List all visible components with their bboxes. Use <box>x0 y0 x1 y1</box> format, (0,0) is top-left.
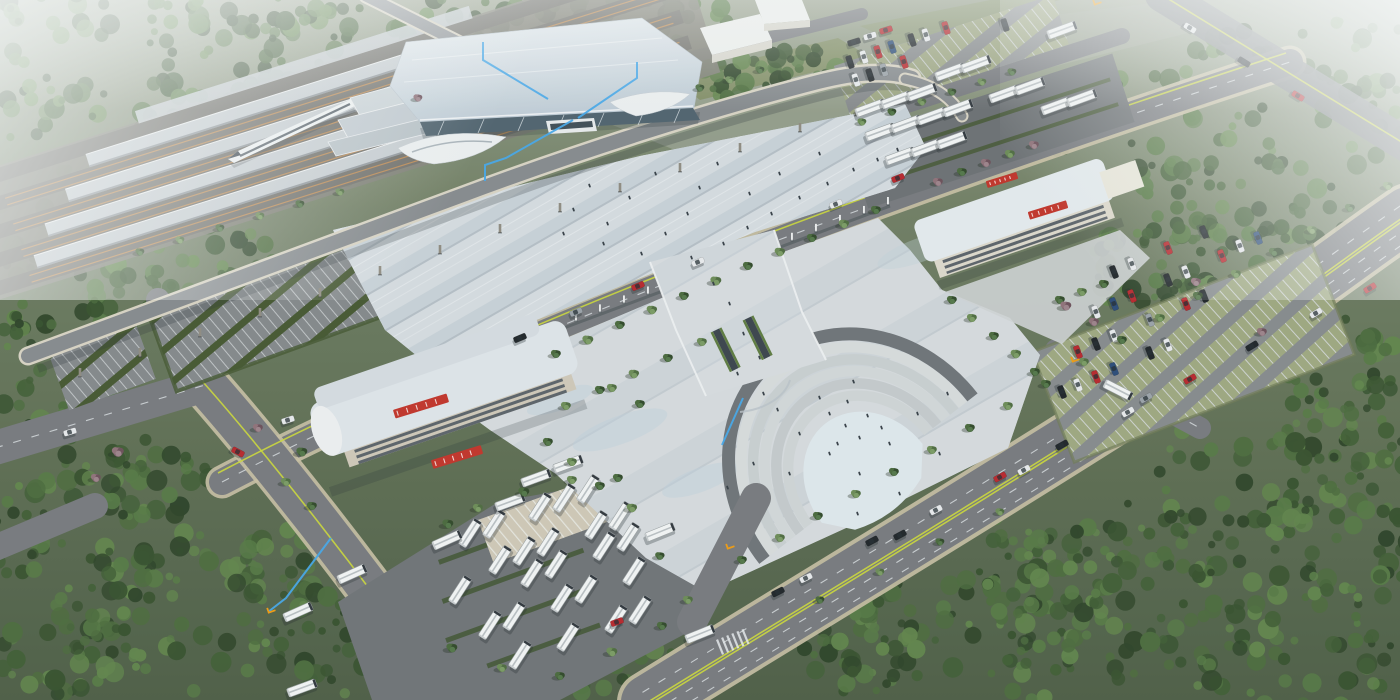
station-complex-rendering <box>0 0 1400 700</box>
atmospheric-haze <box>0 0 1400 700</box>
aerial-rendering-canvas <box>0 0 1400 700</box>
